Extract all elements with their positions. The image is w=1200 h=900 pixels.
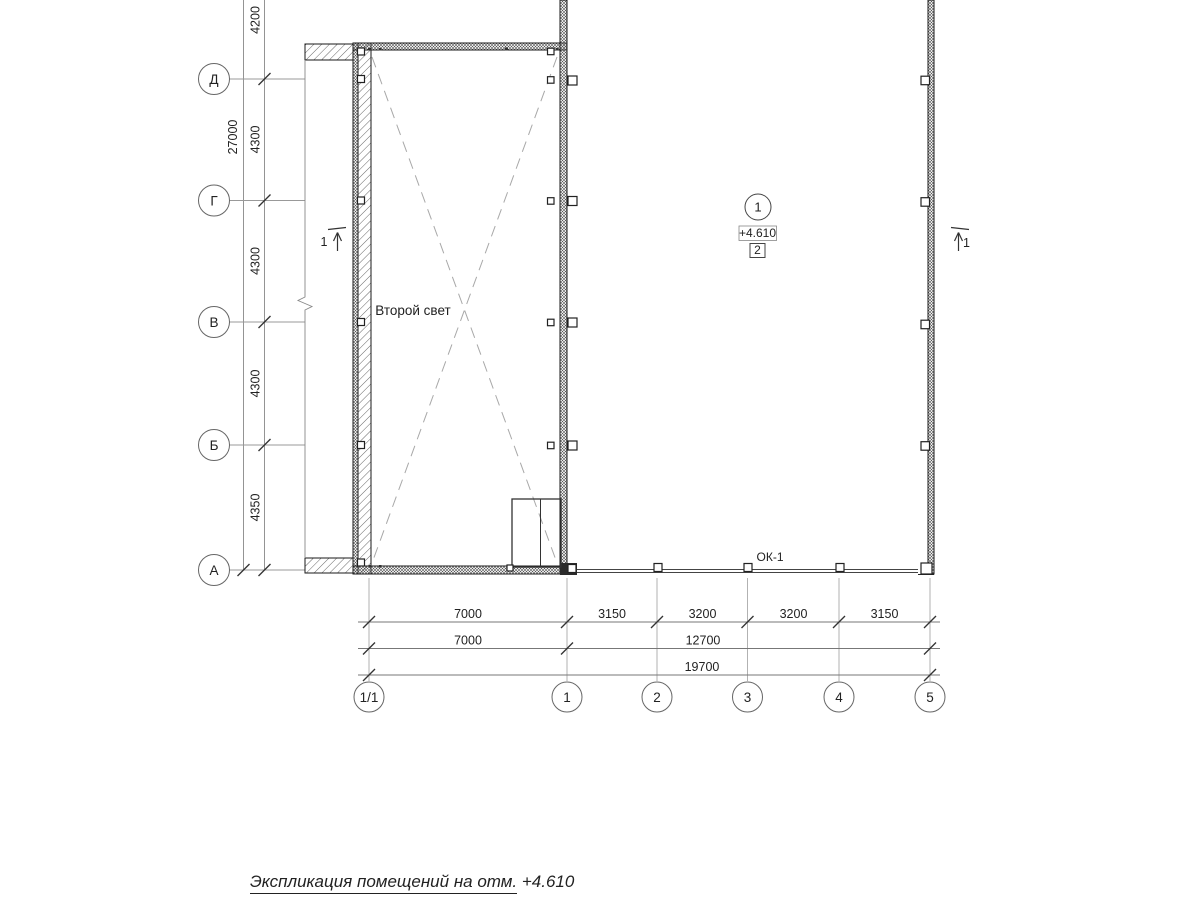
- column-marker: [358, 48, 365, 55]
- column-marker: [548, 198, 555, 205]
- floor-plan-drawing: Д Г В Б А 4200 4300 4300 4300 4350 27000: [0, 0, 1200, 900]
- column-marker: [507, 565, 513, 571]
- axis-label: В: [209, 315, 218, 330]
- dim-text: 12700: [686, 634, 721, 648]
- stud-dot: [368, 48, 371, 51]
- column-marker: [921, 76, 930, 85]
- left-wall-inner-layer: [358, 43, 371, 574]
- axis-label: 1: [563, 690, 571, 705]
- middle-wall: [560, 0, 567, 574]
- dim-text: 3200: [689, 607, 717, 621]
- column-marker: [548, 77, 555, 84]
- column-marker: [548, 319, 555, 326]
- dim-text: 7000: [454, 634, 482, 648]
- column-marker: [568, 76, 577, 85]
- left-wall-outer-layer: [353, 43, 358, 574]
- axis-label: 3: [744, 690, 752, 705]
- dim-text: 3200: [780, 607, 808, 621]
- type-number: 2: [754, 243, 761, 257]
- dim-text: 4300: [249, 126, 263, 154]
- axis-label: А: [209, 563, 218, 578]
- column-marker: [744, 564, 752, 572]
- column-marker: [548, 48, 555, 55]
- column-marker: [836, 564, 844, 572]
- dim-text-total: 19700: [685, 660, 720, 674]
- dim-text: 3150: [871, 607, 899, 621]
- axis-label: 4: [835, 690, 843, 705]
- canvas-background: [0, 0, 1200, 900]
- column-marker: [568, 565, 576, 573]
- elevation-value: +4.610: [739, 226, 776, 240]
- wall-stub-top-left: [305, 44, 353, 60]
- dim-text: 7000: [454, 607, 482, 621]
- title-text: Экспликация помещений на отм. +4.610: [250, 872, 575, 891]
- section-number: 1: [963, 236, 970, 250]
- right-wall: [928, 0, 934, 574]
- dim-text-total: 27000: [226, 120, 240, 155]
- dim-text: 4200: [249, 6, 263, 34]
- axis-label: Г: [210, 193, 218, 208]
- wall-stub-bottom-left: [305, 558, 353, 573]
- dim-text: 3150: [598, 607, 626, 621]
- floor-plan-page: Д Г В Б А 4200 4300 4300 4300 4350 27000: [0, 0, 1200, 900]
- column-marker: [548, 442, 555, 449]
- column-marker: [654, 564, 662, 572]
- column-marker: [568, 318, 577, 327]
- column-marker: [921, 320, 930, 329]
- stud-dot: [505, 48, 508, 51]
- column-marker: [568, 441, 577, 450]
- column-marker: [921, 442, 930, 451]
- axis-label: Б: [210, 438, 219, 453]
- axis-label: 2: [653, 690, 661, 705]
- top-wall: [353, 43, 567, 50]
- axis-label: Д: [209, 72, 218, 87]
- room-label: Второй свет: [375, 303, 450, 318]
- column-marker: [358, 197, 365, 204]
- stud-dot: [556, 48, 559, 51]
- sheet-title: Экспликация помещений на отм. +4.610: [250, 872, 575, 894]
- column-marker: [358, 76, 365, 83]
- column-marker: [358, 559, 365, 566]
- column-marker: [921, 198, 930, 207]
- axis-label: 5: [926, 690, 934, 705]
- column-marker: [358, 319, 365, 326]
- dim-text: 4350: [249, 494, 263, 522]
- dim-text: 4300: [249, 370, 263, 398]
- room-number: 1: [754, 200, 761, 215]
- column-marker: [921, 563, 932, 574]
- section-number: 1: [321, 235, 328, 249]
- column-marker: [358, 442, 365, 449]
- stud-dot: [379, 565, 382, 568]
- dim-text: 4300: [249, 247, 263, 275]
- axis-label: 1/1: [360, 690, 379, 705]
- stud-dot: [379, 48, 382, 51]
- window-tag: ОК-1: [757, 550, 784, 564]
- column-marker: [568, 197, 577, 206]
- stud-dot: [369, 565, 372, 568]
